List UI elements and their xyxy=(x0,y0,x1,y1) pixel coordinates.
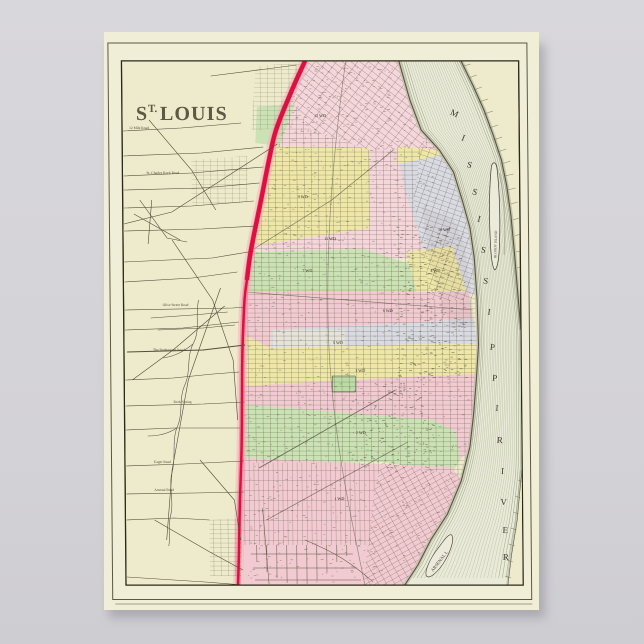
svg-text:5 WD: 5 WD xyxy=(333,340,343,345)
svg-text:I: I xyxy=(501,466,505,476)
svg-text:6 WD: 6 WD xyxy=(383,308,393,313)
svg-text:Arsenal Road: Arsenal Road xyxy=(154,488,174,492)
svg-text:12 Mile Road: 12 Mile Road xyxy=(129,126,149,130)
svg-text:7 WD: 7 WD xyxy=(302,268,312,273)
svg-text:11 WD: 11 WD xyxy=(324,236,336,241)
svg-text:The Bonhomme Road: The Bonhomme Road xyxy=(153,348,185,352)
svg-text:Rock Spring: Rock Spring xyxy=(173,400,191,404)
svg-text:P: P xyxy=(492,373,498,383)
svg-text:BLOODY ISLAND: BLOODY ISLAND xyxy=(493,230,498,258)
svg-text:R: R xyxy=(496,435,503,445)
svg-text:9 WD: 9 WD xyxy=(298,194,308,199)
svg-text:12 WD: 12 WD xyxy=(314,113,326,118)
svg-text:V: V xyxy=(500,497,507,507)
svg-text:10 WD: 10 WD xyxy=(438,227,450,232)
svg-text:S: S xyxy=(136,103,147,125)
svg-text:LOUIS: LOUIS xyxy=(160,103,228,125)
svg-text:4 WD: 4 WD xyxy=(430,268,440,273)
svg-text:Eager Road: Eager Road xyxy=(154,460,171,464)
svg-text:St. Charles Rock Road: St. Charles Rock Road xyxy=(146,171,179,175)
svg-text:T.: T. xyxy=(148,103,158,115)
svg-text:Olive Street Road: Olive Street Road xyxy=(163,303,189,307)
svg-text:2 WD: 2 WD xyxy=(356,430,366,435)
svg-text:E: E xyxy=(502,525,508,535)
svg-text:1 WD: 1 WD xyxy=(334,496,344,501)
svg-text:3 WD: 3 WD xyxy=(355,368,365,373)
